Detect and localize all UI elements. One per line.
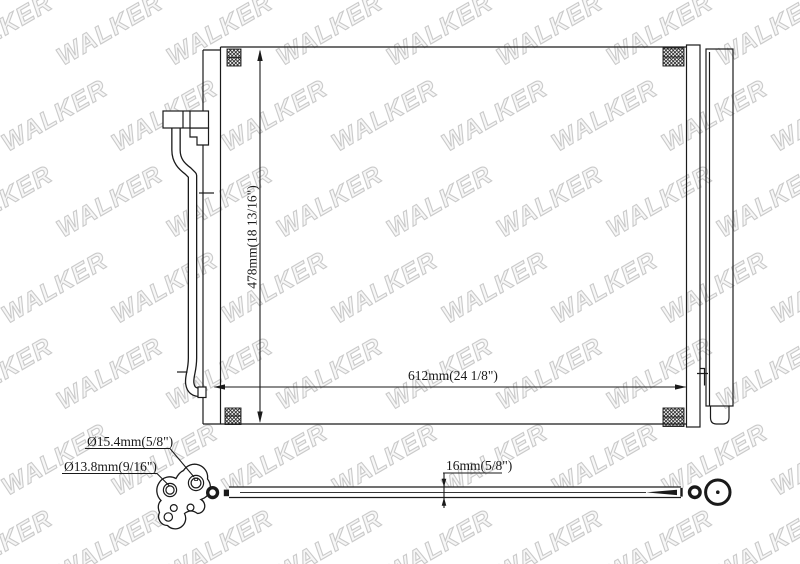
end-grommet-hole: [691, 489, 698, 496]
pipe-bracket: [163, 111, 209, 145]
receiver-bottom-cap: [711, 406, 730, 424]
width-arrow-right: [675, 384, 687, 389]
port-small-leader: [62, 474, 170, 487]
tube-arrow-down: [442, 479, 447, 487]
pipe-assembly-side-view: [157, 464, 730, 529]
tube-root-ring-hole: [209, 489, 215, 495]
width-arrow-left: [214, 384, 226, 389]
end-washer-center-dot: [716, 490, 720, 494]
port-small-dimension-label: Ø13.8mm(9/16"): [64, 459, 157, 474]
inlet-pipe: [176, 128, 206, 398]
right-tank-outline: [687, 45, 701, 427]
width-dimension: 612mm(24 1/8"): [214, 368, 687, 390]
height-arrow-down: [257, 412, 262, 424]
tube-root-block: [224, 490, 229, 497]
tube-dimension-label: 16mm(5/8"): [446, 458, 512, 473]
bracket-step: [190, 128, 209, 145]
receiver-drier: [706, 49, 733, 424]
pipe-end-cap: [198, 387, 206, 398]
tube-end-tick: [680, 488, 682, 497]
port-small-dimension: Ø13.8mm(9/16"): [62, 459, 170, 486]
port-large-dimension-label: Ø15.4mm(5/8"): [87, 434, 173, 449]
height-dimension: 478mm(18 13/16"): [245, 50, 263, 424]
bracket-block: [163, 111, 209, 128]
parts-diagram: 478mm(18 13/16") 612mm(24 1/8"): [0, 0, 800, 564]
height-dimension-label: 478mm(18 13/16"): [245, 185, 260, 288]
left-tank-outline: [203, 47, 221, 424]
tube-dimension: 16mm(5/8"): [442, 458, 513, 508]
diagram-page: WALKERWALKERWALKERWALKERWALKERWALKERWALK…: [0, 0, 800, 564]
height-arrow-up: [257, 50, 262, 62]
width-dimension-label: 612mm(24 1/8"): [408, 368, 498, 383]
tube-arrow-up: [442, 498, 447, 506]
